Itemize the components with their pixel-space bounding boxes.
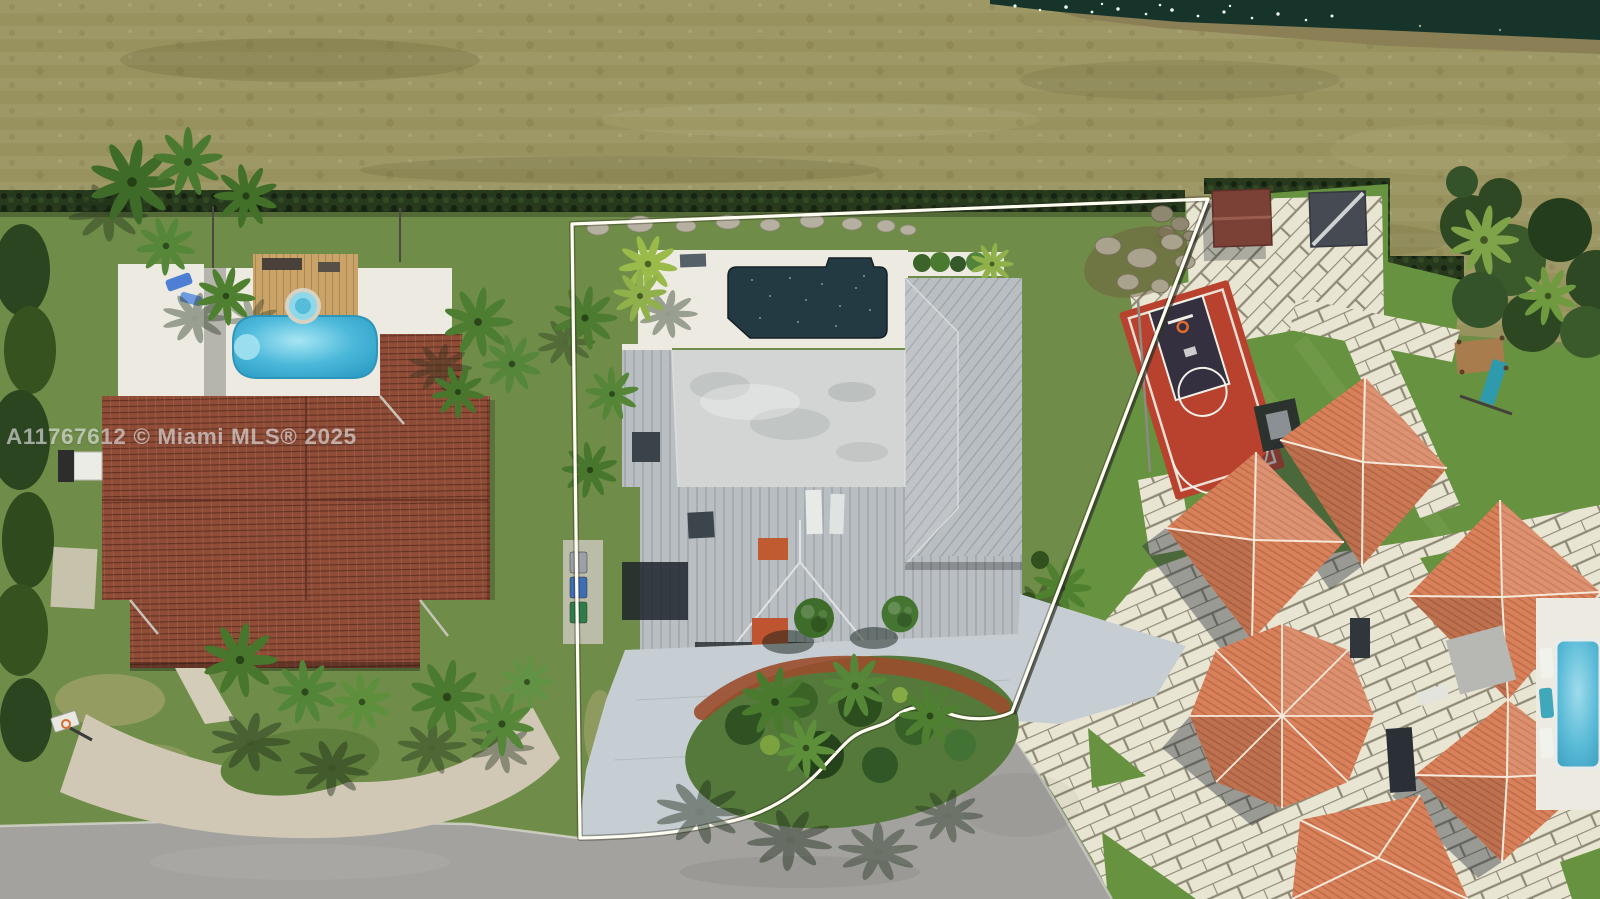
skylight	[805, 490, 823, 535]
lounge-chair	[1539, 647, 1555, 678]
front-door-awning	[758, 538, 788, 560]
mansion-wall-shadow	[1386, 727, 1416, 793]
spa	[287, 290, 319, 322]
entry-tree	[794, 598, 834, 638]
rooftop-unit	[58, 450, 74, 482]
garage-shadow	[622, 562, 688, 620]
storage-shed	[1212, 189, 1272, 247]
skylight	[829, 494, 844, 534]
deck-furniture	[262, 258, 302, 270]
storage-shed-2	[1309, 191, 1367, 247]
side-walkway	[50, 547, 97, 609]
dark-swimming-pool	[728, 258, 887, 338]
entry-tree	[882, 596, 919, 633]
pool-deck	[118, 264, 204, 398]
deck-bench	[680, 254, 706, 268]
lounge-chair	[1539, 727, 1555, 758]
roof-vent	[687, 511, 714, 538]
shrub	[1031, 551, 1049, 569]
pool-steps	[234, 334, 260, 360]
mansion-pool-area	[1536, 598, 1600, 810]
deck-furniture	[318, 262, 340, 272]
chimney	[74, 452, 102, 480]
orange-pavilion-roof	[1190, 624, 1374, 808]
aerial-listing-photo: A11767612 © Miami MLS® 2025	[0, 0, 1600, 899]
aerial-photo-canvas	[0, 0, 1600, 899]
mansion-pool	[1556, 640, 1600, 768]
mansion-wall-shadow	[1350, 618, 1370, 658]
lounge-chair	[1539, 687, 1555, 718]
tree-shadow	[850, 627, 898, 649]
roof-vent	[632, 432, 660, 462]
